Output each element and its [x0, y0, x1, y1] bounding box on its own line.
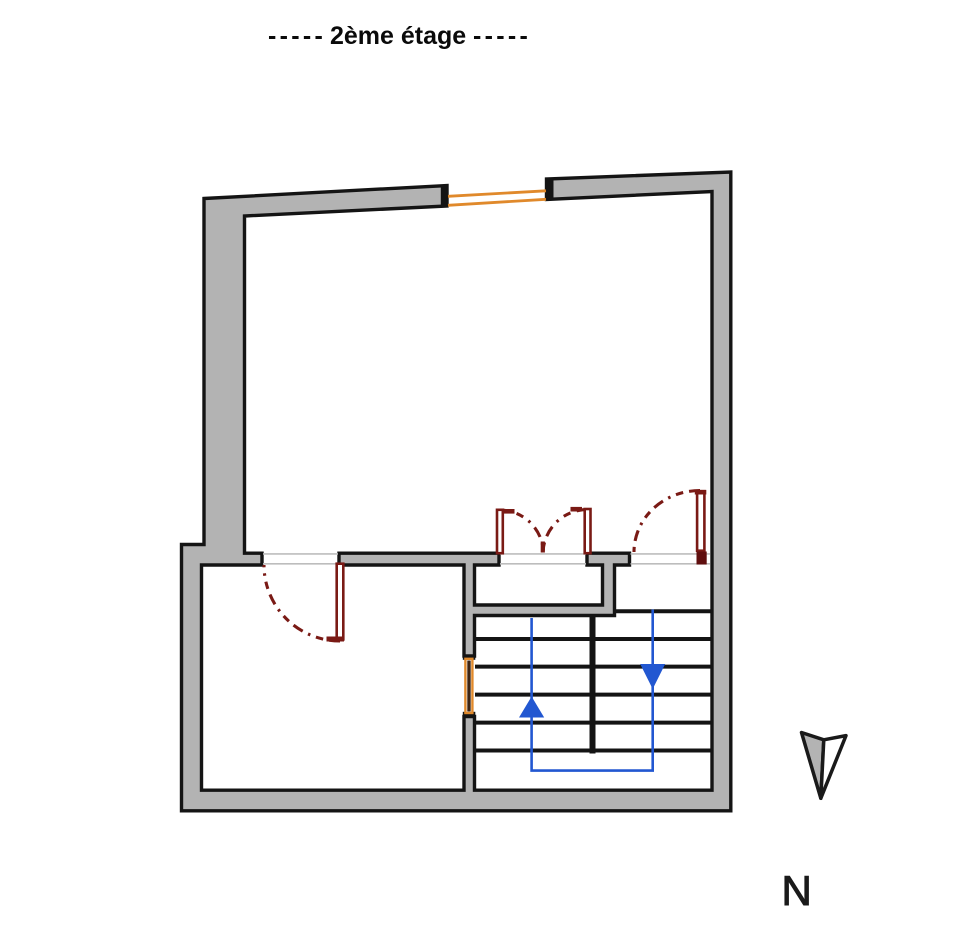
svg-text:2ème étage: 2ème étage [330, 22, 466, 50]
svg-text:N: N [782, 867, 812, 914]
svg-text:-----: ----- [268, 22, 326, 50]
svg-text:-----: ----- [473, 22, 531, 50]
